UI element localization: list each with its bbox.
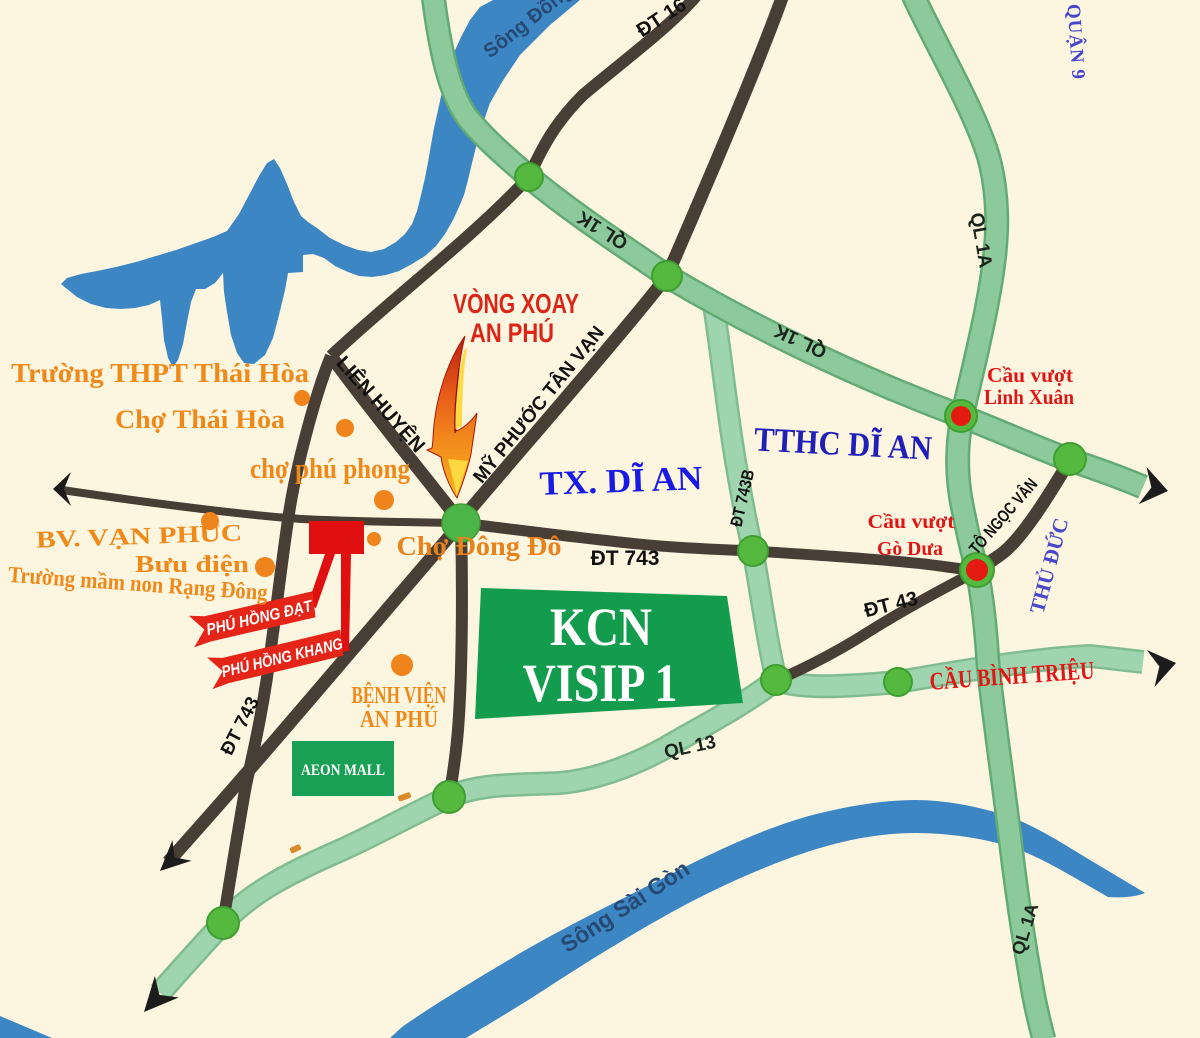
svg-text:AN PHÚ: AN PHÚ [470, 317, 554, 348]
svg-text:Cầu vượt: Cầu vượt [868, 511, 955, 533]
svg-text:Linh Xuân: Linh Xuân [984, 385, 1074, 409]
svg-text:VÒNG XOAY: VÒNG XOAY [453, 288, 579, 319]
svg-text:Trường THPT Thái Hòa: Trường THPT Thái Hòa [11, 358, 310, 388]
svg-text:ĐT 743: ĐT 743 [591, 547, 660, 570]
svg-text:Chợ Đông Đô: Chợ Đông Đô [397, 531, 562, 561]
svg-text:BỆNH VIỆN: BỆNH VIỆN [352, 683, 447, 709]
svg-text:AN PHÚ: AN PHÚ [360, 707, 438, 733]
svg-text:Gò Dưa: Gò Dưa [877, 538, 943, 560]
svg-text:chợ phú phong: chợ phú phong [250, 453, 410, 485]
svg-text:VISIP 1: VISIP 1 [523, 653, 678, 713]
svg-text:KCN: KCN [550, 597, 652, 657]
svg-text:AEON MALL: AEON MALL [301, 762, 385, 779]
svg-text:Chợ Thái Hòa: Chợ Thái Hòa [115, 405, 285, 434]
svg-text:TX. DĨ AN: TX. DĨ AN [539, 460, 704, 503]
svg-text:Cầu vượt: Cầu vượt [987, 363, 1073, 387]
